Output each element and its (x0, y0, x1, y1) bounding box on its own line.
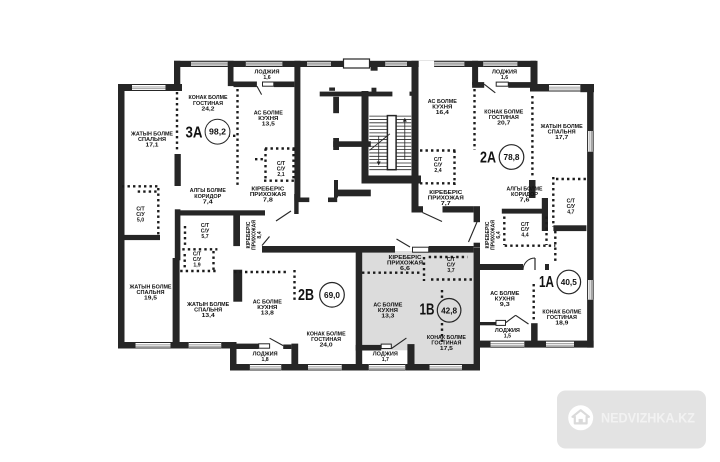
svg-text:24,0: 24,0 (320, 343, 333, 349)
svg-text:2А: 2А (480, 150, 496, 167)
svg-text:7,4: 7,4 (203, 199, 213, 205)
svg-text:20,7: 20,7 (497, 121, 510, 127)
svg-text:98,2: 98,2 (209, 128, 227, 137)
svg-text:1В: 1В (420, 302, 435, 319)
svg-text:42,8: 42,8 (441, 306, 458, 315)
svg-text:40,5: 40,5 (561, 278, 578, 287)
svg-text:6,6: 6,6 (400, 266, 410, 272)
svg-text:16,4: 16,4 (436, 110, 449, 116)
svg-text:8,4: 8,4 (257, 231, 263, 238)
svg-text:7,7: 7,7 (441, 201, 451, 207)
svg-text:19,5: 19,5 (144, 296, 157, 302)
svg-text:2В: 2В (298, 287, 314, 304)
svg-text:2,1: 2,1 (277, 172, 284, 178)
svg-text:1А: 1А (539, 274, 554, 291)
svg-text:18,9: 18,9 (555, 321, 568, 327)
svg-text:9,3: 9,3 (500, 302, 510, 308)
svg-text:3А: 3А (186, 124, 203, 141)
svg-text:7,8: 7,8 (263, 198, 273, 204)
svg-text:13,3: 13,3 (381, 314, 394, 320)
svg-text:1,6: 1,6 (263, 75, 270, 81)
svg-text:78,8: 78,8 (504, 153, 521, 162)
svg-text:4,7: 4,7 (567, 209, 574, 215)
svg-text:1,9: 1,9 (193, 262, 200, 268)
svg-text:1,7: 1,7 (382, 357, 389, 363)
svg-text:13,5: 13,5 (262, 122, 275, 128)
svg-text:5,7: 5,7 (201, 234, 208, 240)
svg-text:17,1: 17,1 (146, 143, 159, 149)
svg-text:17,7: 17,7 (555, 135, 568, 141)
svg-text:13,8: 13,8 (261, 311, 274, 317)
svg-text:3,7: 3,7 (447, 268, 454, 274)
svg-text:69,0: 69,0 (324, 291, 341, 300)
svg-text:7,6: 7,6 (520, 198, 530, 204)
svg-text:24,2: 24,2 (202, 106, 215, 112)
svg-text:1,5: 1,5 (504, 334, 511, 340)
svg-text:5,0: 5,0 (137, 217, 144, 223)
svg-text:13,4: 13,4 (202, 313, 215, 319)
svg-text:NEDVIZHKA.KZ: NEDVIZHKA.KZ (601, 411, 695, 426)
svg-text:1,8: 1,8 (261, 357, 268, 363)
svg-text:1,6: 1,6 (501, 75, 508, 81)
svg-text:4,4: 4,4 (521, 233, 528, 239)
svg-text:6,4: 6,4 (496, 231, 502, 238)
svg-text:2,4: 2,4 (434, 168, 441, 174)
svg-text:17,5: 17,5 (440, 346, 453, 352)
